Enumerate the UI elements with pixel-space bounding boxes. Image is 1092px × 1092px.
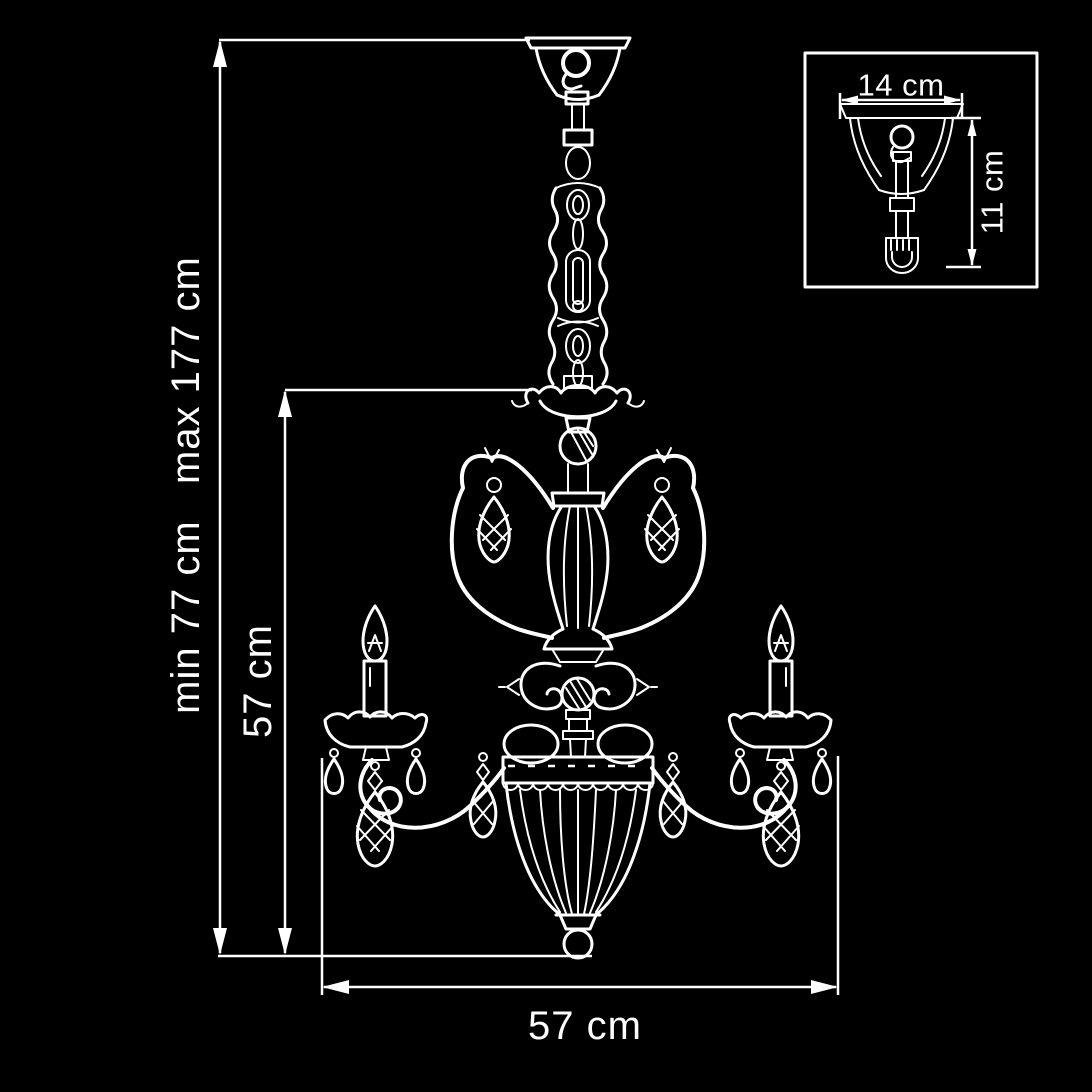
diagram-stage: min 77 cm max 177 cm 57 cm 57 cm 14 cm 1… bbox=[0, 0, 1092, 1092]
inset-hook-icon bbox=[891, 126, 913, 148]
inset-dimensions bbox=[840, 93, 981, 267]
height-range-label: min 77 cm max 177 cm bbox=[166, 256, 206, 714]
fixture-width-label: 57 cm bbox=[528, 1006, 642, 1046]
inset-canopy-width-label: 14 cm bbox=[858, 70, 945, 101]
fixture-height-label: 57 cm bbox=[238, 624, 278, 738]
stem-assembly bbox=[499, 386, 657, 758]
left-candle-arm bbox=[325, 606, 504, 866]
inset-canopy-height-label: 11 cm bbox=[977, 150, 1008, 235]
chain-and-sleeve bbox=[549, 147, 607, 388]
inset-canopy-drawing bbox=[840, 104, 963, 273]
center-bowl bbox=[503, 725, 653, 958]
ceiling-canopy bbox=[526, 38, 630, 145]
right-candle-arm bbox=[652, 606, 831, 866]
dimension-lines bbox=[213, 40, 838, 995]
